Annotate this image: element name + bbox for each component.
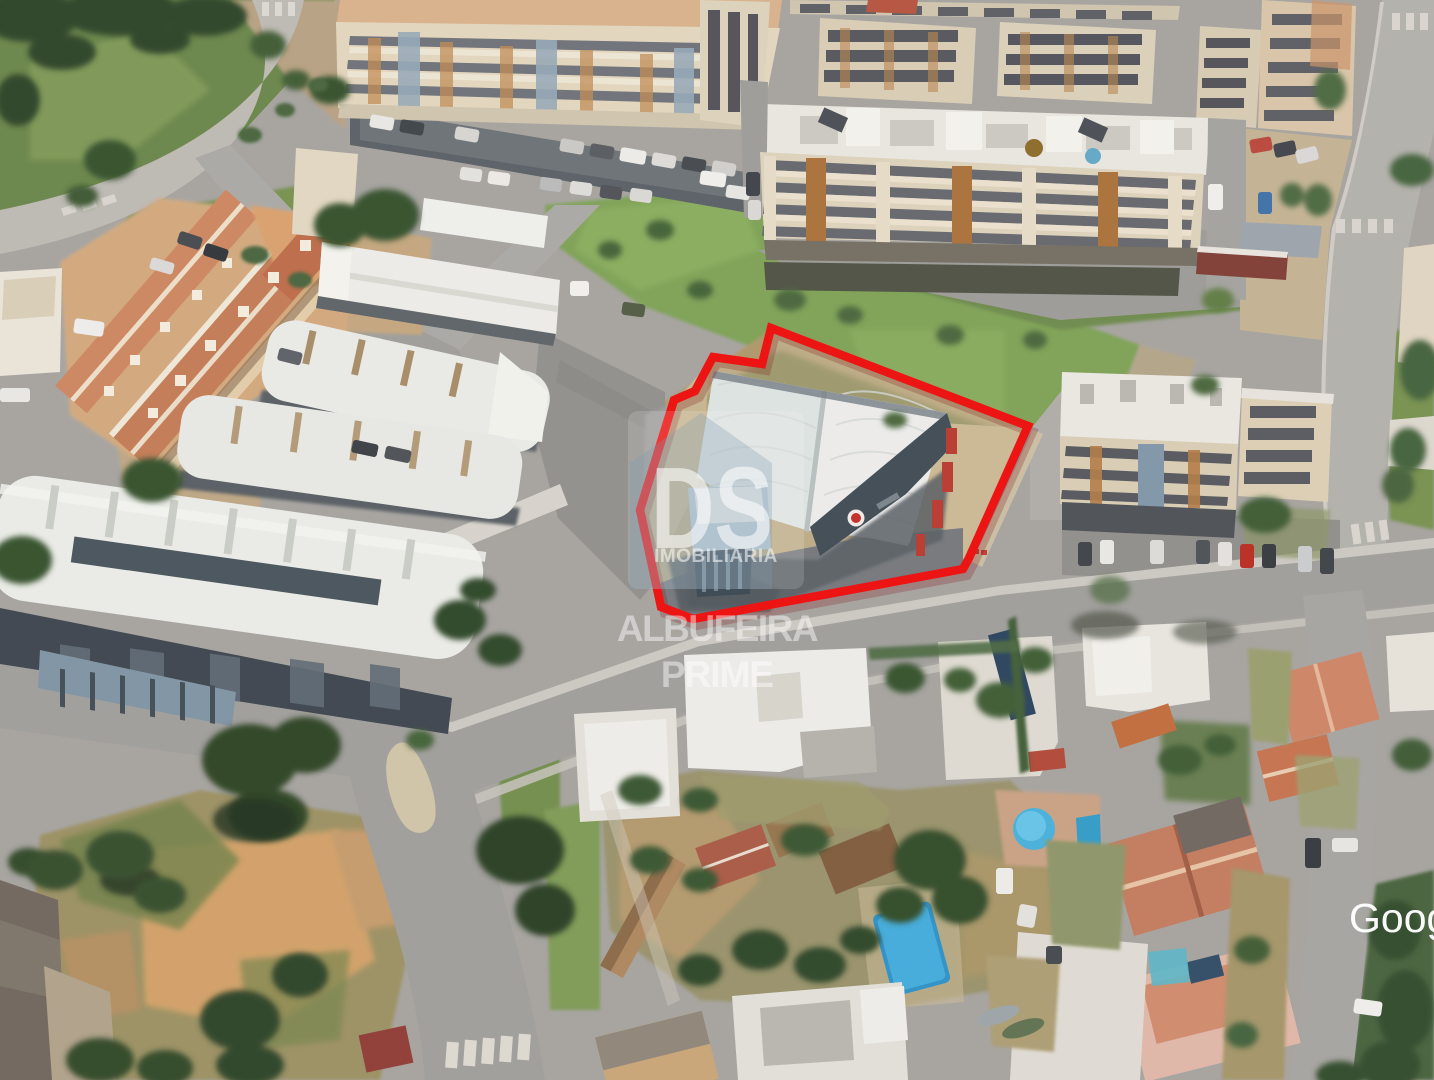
svg-text:Google: Google — [1349, 895, 1434, 941]
svg-text:IMOBILIARIA: IMOBILIARIA — [654, 546, 778, 567]
svg-text:ALBUFEIRA: ALBUFEIRA — [617, 608, 818, 649]
svg-text:PRIME: PRIME — [661, 654, 774, 695]
